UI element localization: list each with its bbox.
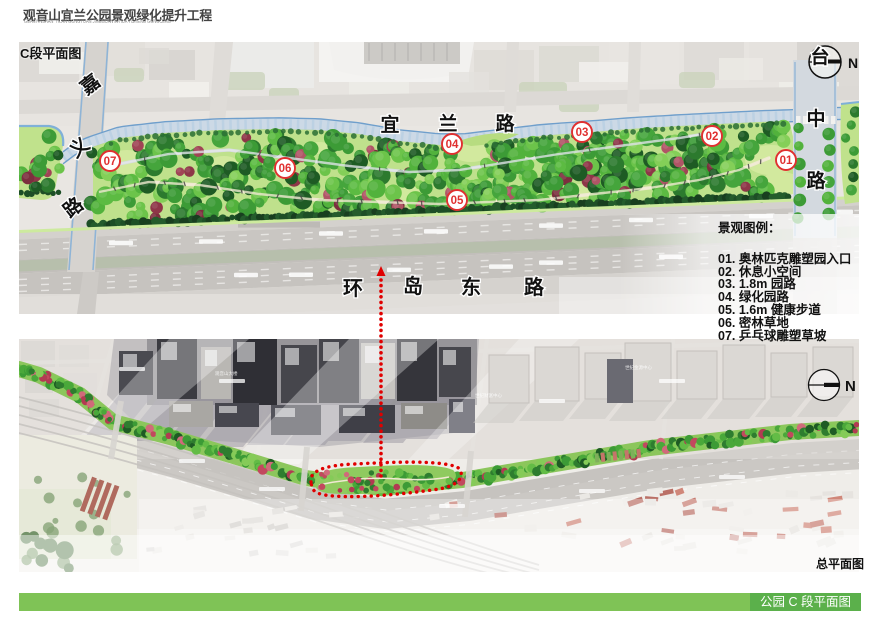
svg-text:环: 环 [343, 278, 363, 300]
svg-text:04: 04 [446, 139, 459, 151]
svg-text:01: 01 [780, 155, 793, 167]
svg-text:中: 中 [806, 107, 825, 130]
svg-text:07: 07 [104, 156, 117, 168]
svg-text:东: 东 [461, 275, 481, 299]
svg-text:台: 台 [810, 45, 829, 68]
svg-text:05: 05 [451, 195, 464, 207]
svg-text:观音山大楼: 观音山大楼 [215, 370, 238, 377]
svg-text:世纪财富中心: 世纪财富中心 [475, 392, 502, 399]
svg-text:03: 03 [576, 127, 589, 139]
svg-text:路: 路 [806, 169, 826, 192]
svg-text:岛: 岛 [403, 274, 423, 298]
svg-text:兰: 兰 [438, 112, 457, 135]
svg-text:N: N [845, 378, 856, 395]
svg-text:世纪金源中心: 世纪金源中心 [625, 364, 652, 371]
svg-text:02: 02 [706, 131, 719, 143]
svg-text:N: N [848, 55, 858, 71]
svg-text:路: 路 [524, 275, 545, 299]
svg-text:06: 06 [279, 163, 292, 175]
svg-text:路: 路 [495, 112, 515, 135]
svg-text:宜: 宜 [380, 113, 399, 136]
